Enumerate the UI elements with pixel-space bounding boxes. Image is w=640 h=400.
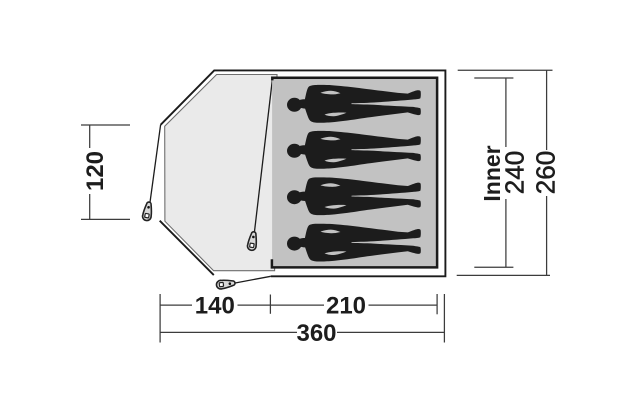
svg-text:240: 240 xyxy=(500,151,530,194)
svg-text:360: 360 xyxy=(296,320,336,347)
svg-text:140: 140 xyxy=(195,293,235,320)
svg-text:260: 260 xyxy=(530,151,560,194)
svg-text:210: 210 xyxy=(326,293,366,320)
svg-text:120: 120 xyxy=(82,151,109,191)
